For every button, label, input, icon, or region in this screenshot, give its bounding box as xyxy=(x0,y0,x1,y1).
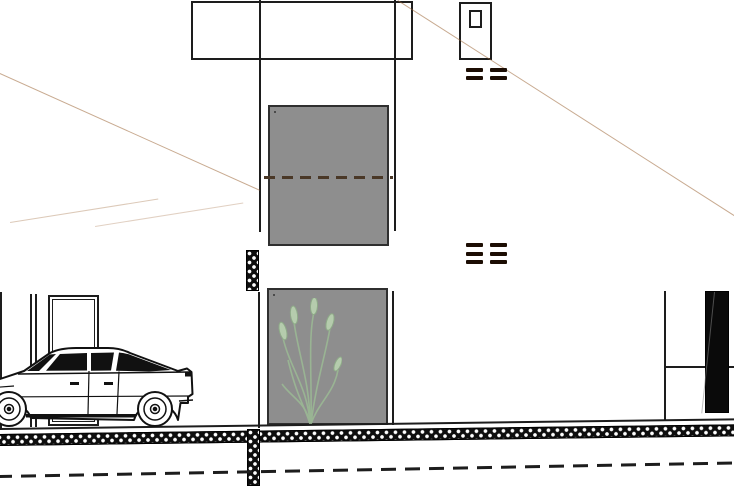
roof-vent-dash xyxy=(466,243,483,247)
soffit-slot xyxy=(186,256,192,269)
roof-vent-dash xyxy=(466,252,483,256)
soffit-slot xyxy=(0,256,4,269)
foundation-cut-hatch xyxy=(247,429,260,486)
soffit-slot xyxy=(30,256,36,269)
soffit-slot xyxy=(155,256,161,269)
window-upper-pane-right xyxy=(274,111,276,113)
car-tail-light xyxy=(185,372,192,377)
car-sill xyxy=(26,414,136,418)
window-upper-dashed-line xyxy=(264,176,393,179)
plant xyxy=(278,298,342,426)
wall-corner-left xyxy=(258,292,260,428)
roof-vent-dash xyxy=(490,243,507,247)
soffit-slot xyxy=(93,256,99,269)
transom-line-edge xyxy=(729,366,734,368)
wall-corner-right xyxy=(392,291,394,425)
roof-vent-dash xyxy=(490,68,507,72)
roof-vent-dash xyxy=(466,76,483,80)
wall-joint-line xyxy=(664,291,666,421)
elevation-drawing xyxy=(0,0,734,490)
dark-doorway xyxy=(705,291,729,413)
roof-vent-dash xyxy=(490,260,507,264)
section-cut-hatch-upper xyxy=(246,250,259,291)
soffit-slot xyxy=(62,256,68,269)
soffit-slot xyxy=(217,256,223,269)
car xyxy=(0,341,202,429)
soffit-slot xyxy=(124,256,130,269)
roof-vent-dash xyxy=(466,68,483,72)
roof-vent-dash xyxy=(466,260,483,264)
transom-line xyxy=(664,366,706,368)
roof-vent-dash xyxy=(490,76,507,80)
car-door-handle xyxy=(70,382,79,385)
car-door-handle xyxy=(104,382,113,385)
roof-vent-dash xyxy=(490,252,507,256)
window-lower-pane-right xyxy=(273,294,275,296)
